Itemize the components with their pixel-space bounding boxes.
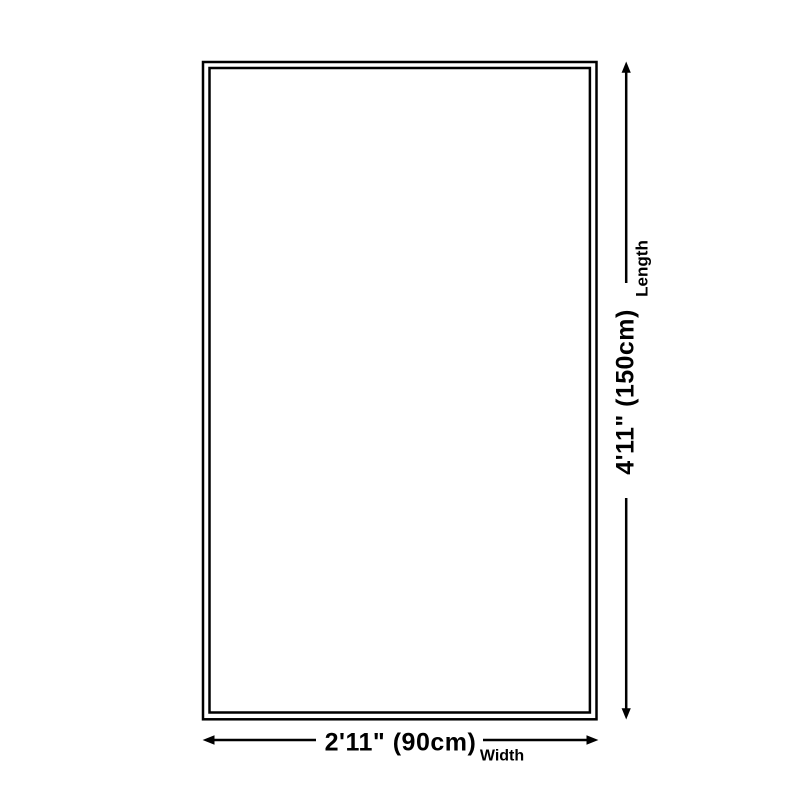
svg-text:Width: Width xyxy=(480,748,524,765)
svg-text:4'11" (150cm): 4'11" (150cm) xyxy=(612,309,640,474)
svg-text:2'11" (90cm): 2'11" (90cm) xyxy=(325,729,477,757)
svg-text:Length: Length xyxy=(633,240,652,297)
